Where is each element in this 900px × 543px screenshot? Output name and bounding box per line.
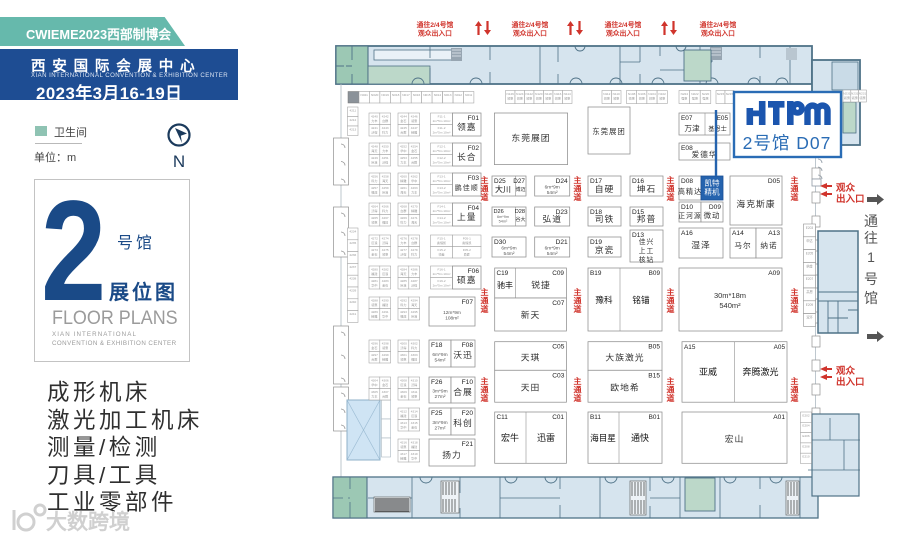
svg-text:F05-2: F05-2 [463,248,471,252]
svg-text:巨浪: 巨浪 [400,282,406,287]
svg-text:C09: C09 [552,270,564,277]
svg-text:4277: 4277 [400,248,407,252]
svg-text:凯特: 凯特 [704,178,720,188]
svg-text:福建: 福建 [382,302,388,307]
svg-text:A13: A13 [768,230,780,237]
svg-text:上量: 上量 [457,212,477,222]
svg-text:6m*9m: 6m*9m [497,215,509,219]
svg-text:4213: 4213 [349,127,356,131]
svg-text:通往2/4号馆: 通往2/4号馆 [700,20,737,29]
svg-text:C03: C03 [552,372,564,379]
svg-text:4234: 4234 [349,229,356,233]
svg-text:F21: F21 [462,441,474,448]
svg-text:巨浪: 巨浪 [371,159,377,164]
svg-text:领惠: 领惠 [545,95,551,100]
svg-text:N: N [173,152,185,171]
svg-text:海天: 海天 [382,178,388,183]
svg-text:4312: 4312 [400,409,407,413]
svg-text:4257: 4257 [371,186,378,190]
svg-text:坤石: 坤石 [637,183,657,194]
svg-text:F06: F06 [468,268,480,275]
svg-text:F05-1: F05-1 [463,236,471,240]
svg-text:6m*9m: 6m*9m [432,352,447,358]
svg-text:铭锚: 铭锚 [632,294,650,305]
svg-text:4259: 4259 [382,186,389,190]
svg-text:E05: E05 [717,115,729,122]
svg-text:D09: D09 [709,204,721,211]
svg-text:N021: N021 [360,93,368,97]
svg-text:4251: 4251 [382,156,389,160]
svg-text:沃得: 沃得 [371,129,377,134]
svg-text:4294: 4294 [411,298,418,302]
svg-text:领惠: 领惠 [526,95,532,100]
svg-text:领惠: 领惠 [371,219,377,224]
svg-text:合展: 合展 [453,386,473,397]
svg-text:2m*5m 10m²: 2m*5m 10m² [433,149,451,153]
svg-text:华中: 华中 [400,148,406,153]
svg-text:台群: 台群 [411,159,417,164]
svg-text:科力: 科力 [400,302,406,307]
svg-text:4290: 4290 [382,298,389,302]
svg-text:核钻: 核钻 [639,255,655,264]
svg-text:领惠: 领惠 [507,95,513,100]
svg-text:4281: 4281 [371,279,378,283]
svg-text:湿泽: 湿泽 [691,240,711,250]
svg-text:4267: 4267 [382,216,389,220]
svg-text:4303: 4303 [411,353,418,357]
svg-text:4252: 4252 [400,144,407,148]
svg-text:D30: D30 [494,239,506,246]
svg-text:主通道: 主通道 [667,175,675,202]
svg-text:N020: N020 [371,93,379,97]
svg-text:C19: C19 [497,270,509,277]
svg-text:领惠: 领惠 [517,95,523,100]
svg-text:海克斯康: 海克斯康 [736,198,775,209]
svg-text:B15: B15 [648,372,660,379]
svg-text:4242: 4242 [382,114,389,118]
svg-text:4317: 4317 [400,452,407,456]
svg-text:E07: E07 [681,115,693,122]
svg-text:4269: 4269 [400,216,407,220]
svg-text:27m²: 27m² [435,394,446,400]
svg-text:海目星: 海目星 [590,432,616,443]
svg-text:6m*9m: 6m*9m [501,246,516,252]
svg-text:4299: 4299 [382,353,389,357]
svg-text:欧地希: 欧地希 [610,381,639,392]
svg-text:4319: 4319 [411,452,418,456]
svg-text:海天: 海天 [411,302,417,307]
svg-text:迅雷: 迅雷 [537,433,555,443]
svg-text:4305: 4305 [371,390,378,394]
svg-text:精雕: 精雕 [400,178,406,183]
svg-text:A14: A14 [732,230,744,237]
svg-text:通往2/4号馆: 通往2/4号馆 [605,20,642,29]
svg-text:N106: N106 [638,92,646,96]
svg-text:2m*5m 10m²: 2m*5m 10m² [433,119,451,123]
svg-text:金石: 金石 [371,251,377,256]
svg-text:4310: 4310 [411,378,418,382]
svg-text:京瓷: 京瓷 [595,244,615,255]
svg-text:4244: 4244 [400,114,407,118]
svg-text:C07: C07 [552,300,564,307]
svg-text:4245: 4245 [400,126,407,130]
svg-text:科力: 科力 [371,178,377,183]
svg-text:4212: 4212 [349,118,356,122]
svg-text:华中: 华中 [371,382,377,387]
svg-text:巨浪: 巨浪 [371,240,377,245]
svg-text:F15-2: F15-2 [437,248,445,252]
svg-text:N224: N224 [681,92,689,96]
svg-text:C01: C01 [552,414,564,421]
svg-text:F13-1: F13-1 [437,174,445,178]
svg-text:N014: N014 [434,93,442,97]
svg-text:F18: F18 [431,342,443,349]
svg-text:E207: E207 [806,277,814,281]
svg-text:F20: F20 [462,410,474,417]
svg-text:A05: A05 [774,344,786,351]
svg-text:4265: 4265 [371,216,378,220]
svg-text:4240: 4240 [349,300,356,304]
svg-text:通往2/4号馆: 通往2/4号馆 [512,20,549,29]
svg-text:2m*5m 10m²: 2m*5m 10m² [433,272,451,276]
svg-text:领惠: 领惠 [852,95,858,100]
svg-text:4307: 4307 [382,390,389,394]
svg-text:领惠: 领惠 [629,95,635,100]
svg-text:硕嘉: 硕嘉 [457,274,477,285]
svg-text:4311: 4311 [411,390,418,394]
svg-text:台群: 台群 [382,393,388,398]
svg-text:E205: E205 [806,252,814,256]
svg-text:4278: 4278 [411,236,418,240]
svg-text:沃得: 沃得 [371,208,377,213]
svg-text:F01: F01 [468,115,480,122]
svg-text:N231: N231 [859,91,867,95]
svg-text:N018: N018 [392,93,400,97]
svg-text:邦普: 邦普 [637,213,657,224]
svg-text:4246: 4246 [411,114,418,118]
svg-text:高恩: 高恩 [806,289,813,294]
svg-text:领惠: 领惠 [400,444,406,449]
svg-text:通: 通 [864,213,878,229]
svg-text:N120: N120 [535,92,543,96]
svg-text:4255: 4255 [411,156,418,160]
svg-text:台群: 台群 [382,118,388,123]
svg-text:观众: 观众 [835,182,856,194]
svg-text:出入口: 出入口 [836,193,865,205]
svg-text:4235: 4235 [349,241,356,245]
svg-text:F03: F03 [468,175,480,182]
svg-text:E204: E204 [802,424,810,428]
svg-text:6m*9m: 6m*9m [545,185,560,191]
svg-text:华中: 华中 [400,424,406,429]
svg-text:观众出入口: 观众出入口 [513,29,547,38]
svg-text:N112: N112 [603,92,610,96]
svg-text:领惠: 领惠 [659,95,665,100]
svg-text:B11: B11 [590,414,601,421]
svg-text:A01: A01 [773,414,785,421]
svg-text:F16-2: F16-2 [437,279,445,283]
svg-text:D21: D21 [556,239,568,246]
svg-text:4248: 4248 [371,144,378,148]
svg-text:4241: 4241 [349,312,356,316]
svg-text:强惠: 强惠 [702,95,708,100]
svg-text:领惠: 领惠 [536,95,542,100]
svg-text:领惠: 领惠 [400,356,406,361]
svg-text:金石: 金石 [400,118,406,123]
svg-text:4279: 4279 [411,248,418,252]
svg-text:天田: 天田 [521,382,541,392]
svg-text:4260: 4260 [400,174,407,178]
svg-text:微动: 微动 [704,211,721,220]
svg-text:4262: 4262 [411,174,418,178]
svg-text:12m*9m: 12m*9m [443,310,461,316]
svg-text:奥恒凯: 奥恒凯 [462,240,471,245]
svg-text:台群: 台群 [400,208,406,213]
svg-text:4274: 4274 [382,236,389,240]
svg-text:沃得: 沃得 [411,382,417,387]
svg-text:弘道: 弘道 [542,213,562,224]
svg-text:4243: 4243 [382,126,389,130]
svg-text:4247: 4247 [411,126,418,130]
svg-text:台群: 台群 [400,129,406,134]
svg-text:D27: D27 [513,178,525,185]
svg-text:F26: F26 [431,379,443,386]
svg-text:自硬: 自硬 [595,183,615,194]
svg-text:主通道: 主通道 [791,175,799,202]
svg-text:博迈: 博迈 [515,186,525,193]
svg-text:N215: N215 [726,92,734,96]
svg-text:F14-1: F14-1 [437,204,445,208]
svg-text:福建: 福建 [371,189,377,194]
svg-text:N126: N126 [506,92,514,96]
svg-text:4297: 4297 [371,353,378,357]
svg-text:巨浪: 巨浪 [382,271,388,276]
svg-text:4238: 4238 [349,277,356,281]
svg-text:正河源: 正河源 [678,211,701,220]
svg-text:D25: D25 [494,178,506,185]
svg-text:观众: 观众 [835,365,856,377]
svg-text:金石: 金石 [411,424,417,429]
svg-text:海天: 海天 [411,219,417,224]
svg-text:观众出入口: 观众出入口 [606,29,640,38]
svg-text:华中: 华中 [371,282,377,287]
svg-text:4249: 4249 [371,156,378,160]
svg-text:观众出入口: 观众出入口 [418,29,452,38]
svg-text:长合: 长合 [457,151,477,162]
svg-text:观众出入口: 观众出入口 [701,29,735,38]
svg-text:福建: 福建 [411,356,417,361]
svg-text:天琪: 天琪 [521,352,541,363]
svg-text:福建: 福建 [411,444,417,449]
svg-text:4286: 4286 [411,267,418,271]
svg-text:540m²: 540m² [719,301,741,310]
svg-text:精雕: 精雕 [371,313,377,318]
svg-text:马尔: 马尔 [734,240,751,250]
svg-text:2m*5m 10m²: 2m*5m 10m² [433,160,451,164]
svg-text:4318: 4318 [411,440,418,444]
svg-text:领惠: 领惠 [555,95,561,100]
svg-text:高精达: 高精达 [678,187,703,196]
svg-text:科力: 科力 [411,345,417,350]
svg-text:4301: 4301 [400,353,407,357]
svg-text:2m*5m 10m²: 2m*5m 10m² [433,209,451,213]
svg-text:通快: 通快 [631,432,649,443]
svg-text:F15-1: F15-1 [437,236,445,240]
svg-text:谷大: 谷大 [515,216,525,223]
svg-text:鹏佳顺: 鹏佳顺 [455,183,479,192]
svg-text:N108: N108 [628,92,636,96]
svg-text:海天: 海天 [400,271,406,276]
svg-text:4288: 4288 [371,298,378,302]
svg-text:4263: 4263 [411,186,418,190]
svg-text:4261: 4261 [400,186,407,190]
svg-text:金石: 金石 [411,148,417,153]
svg-text:4270: 4270 [411,204,418,208]
svg-text:主通道: 主通道 [791,376,799,403]
svg-text:沃迅: 沃迅 [453,350,473,360]
svg-text:N231: N231 [851,91,859,95]
svg-text:基恩士: 基恩士 [708,125,727,133]
svg-text:4272: 4272 [371,236,378,240]
svg-text:F14-2: F14-2 [437,216,445,220]
svg-text:4308: 4308 [400,378,407,382]
svg-text:2m*5m 10m²: 2m*5m 10m² [433,130,451,134]
svg-text:4287: 4287 [411,279,418,283]
svg-text:领惠: 领惠 [639,95,645,100]
svg-text:科力: 科力 [400,219,406,224]
svg-text:领惠: 领惠 [371,302,377,307]
svg-text:福建: 福建 [400,313,406,318]
svg-text:N102: N102 [658,92,666,96]
svg-text:N016: N016 [413,93,421,97]
svg-text:台群: 台群 [411,240,417,245]
svg-text:4237: 4237 [349,265,356,269]
svg-text:4309: 4309 [400,390,407,394]
svg-text:沃得: 沃得 [411,282,417,287]
svg-text:力丰: 力丰 [371,118,377,123]
svg-text:B01: B01 [649,414,661,421]
svg-text:华中: 华中 [382,313,388,318]
svg-text:司铁: 司铁 [595,213,615,224]
svg-text:4296: 4296 [371,341,378,345]
svg-text:海天: 海天 [371,148,377,153]
svg-text:沃得: 沃得 [400,345,406,350]
svg-text:号: 号 [864,271,878,287]
svg-text:金石: 金石 [382,382,388,387]
svg-text:万津: 万津 [684,124,700,133]
svg-text:力丰: 力丰 [382,148,388,153]
svg-text:科力: 科力 [382,129,388,134]
svg-text:N220: N220 [702,92,710,96]
svg-text:4276: 4276 [400,236,407,240]
svg-text:E208: E208 [802,444,810,448]
svg-text:沃得: 沃得 [382,159,388,164]
svg-text:主通道: 主通道 [574,175,582,202]
svg-text:领惠: 领惠 [564,95,570,100]
svg-text:领惠: 领惠 [604,95,610,100]
svg-text:4284: 4284 [400,267,407,271]
svg-text:3m*9m: 3m*9m [432,420,447,426]
svg-text:往: 往 [864,230,878,246]
svg-text:4302: 4302 [411,341,418,345]
svg-text:N017: N017 [402,93,410,97]
svg-text:D08: D08 [681,178,693,185]
svg-text:4239: 4239 [349,288,356,292]
svg-text:E209: E209 [806,303,814,307]
svg-text:2m*5m 10m²: 2m*5m 10m² [433,283,451,287]
svg-text:华中: 华中 [411,178,417,183]
svg-text:4282: 4282 [382,267,389,271]
svg-text:领差: 领差 [438,251,444,256]
svg-text:4253: 4253 [400,156,407,160]
svg-text:精雕: 精雕 [400,455,406,460]
svg-text:4295: 4295 [411,310,418,314]
svg-text:金石: 金石 [382,282,388,287]
svg-text:F16-1: F16-1 [437,267,445,271]
svg-text:4211: 4211 [349,108,356,112]
svg-text:2号馆 D07: 2号馆 D07 [743,133,832,153]
svg-text:N231: N231 [843,91,851,95]
svg-text:D13: D13 [632,232,644,239]
svg-text:4236: 4236 [349,253,356,257]
svg-text:C11: C11 [497,414,509,421]
svg-text:出入口: 出入口 [836,376,865,388]
svg-text:驰丰: 驰丰 [497,280,513,290]
svg-text:沃得: 沃得 [382,240,388,245]
svg-text:N012: N012 [455,93,463,97]
svg-text:主通道: 主通道 [481,175,489,202]
svg-text:54m²: 54m² [547,190,558,196]
svg-text:F04: F04 [468,205,480,212]
svg-text:4293: 4293 [400,310,407,314]
svg-text:上工: 上工 [639,246,655,255]
svg-text:馆: 馆 [864,290,878,306]
svg-text:领惠: 领惠 [382,251,388,256]
svg-text:4306: 4306 [382,378,389,382]
svg-text:巨浪: 巨浪 [400,382,406,387]
svg-text:30m*18m: 30m*18m [714,291,746,300]
svg-text:4275: 4275 [382,248,389,252]
svg-text:亚威: 亚威 [699,366,717,377]
svg-text:领惠: 领惠 [411,393,417,398]
svg-text:纳金: 纳金 [806,263,813,268]
svg-text:领惠: 领惠 [859,95,865,100]
svg-text:E206: E206 [802,434,810,438]
svg-text:D24: D24 [556,178,568,185]
svg-text:领惠: 领惠 [382,345,388,350]
svg-text:力丰: 力丰 [411,189,417,194]
svg-text:大族激光: 大族激光 [605,352,644,363]
svg-text:4316: 4316 [400,440,407,444]
svg-text:E203: E203 [806,226,814,230]
svg-text:F25: F25 [431,410,443,417]
svg-text:华中: 华中 [411,455,417,460]
svg-text:4264: 4264 [371,204,378,208]
svg-text:4256: 4256 [371,174,378,178]
svg-text:爱德华: 爱德华 [692,149,718,159]
svg-text:精雕: 精雕 [382,356,388,361]
svg-text:力丰: 力丰 [371,393,377,398]
svg-text:台群: 台群 [371,356,377,361]
svg-text:4241: 4241 [371,126,378,130]
svg-text:纳诺: 纳诺 [760,240,777,250]
svg-text:B19: B19 [590,270,602,277]
svg-text:巨浪: 巨浪 [411,313,417,318]
svg-text:福建: 福建 [371,271,377,276]
svg-text:4285: 4285 [400,279,407,283]
svg-text:主通道: 主通道 [481,287,489,314]
svg-text:4292: 4292 [400,298,407,302]
